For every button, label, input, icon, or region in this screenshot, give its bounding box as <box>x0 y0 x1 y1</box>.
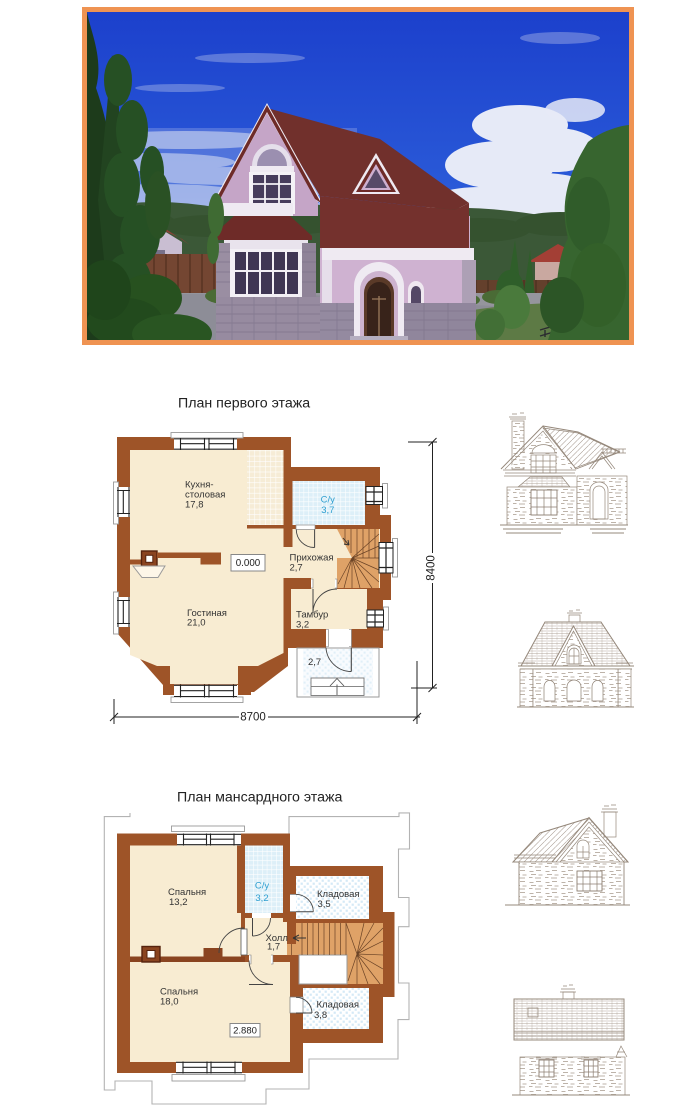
svg-text:2.880: 2.880 <box>233 1026 257 1037</box>
svg-text:3,5: 3,5 <box>318 899 331 910</box>
svg-text:План первого этажа: План первого этажа <box>178 396 310 412</box>
svg-text:0.000: 0.000 <box>236 558 261 569</box>
svg-text:2,7: 2,7 <box>290 563 303 574</box>
svg-text:2,7: 2,7 <box>308 657 321 668</box>
svg-text:3,2: 3,2 <box>296 620 309 631</box>
svg-text:План мансардного этажа: План мансардного этажа <box>177 790 343 806</box>
svg-text:18,0: 18,0 <box>160 997 179 1008</box>
svg-text:13,2: 13,2 <box>169 897 188 908</box>
svg-text:Кладовая: Кладовая <box>317 1000 360 1011</box>
svg-text:1,7: 1,7 <box>267 942 280 953</box>
svg-text:3,8: 3,8 <box>314 1010 327 1021</box>
svg-text:С/у: С/у <box>255 881 270 892</box>
svg-text:3,7: 3,7 <box>321 505 334 516</box>
svg-text:17,8: 17,8 <box>185 500 204 511</box>
svg-text:8400: 8400 <box>426 555 438 581</box>
svg-text:3,2: 3,2 <box>255 893 268 904</box>
svg-text:8700: 8700 <box>240 712 266 724</box>
svg-text:21,0: 21,0 <box>187 618 206 629</box>
